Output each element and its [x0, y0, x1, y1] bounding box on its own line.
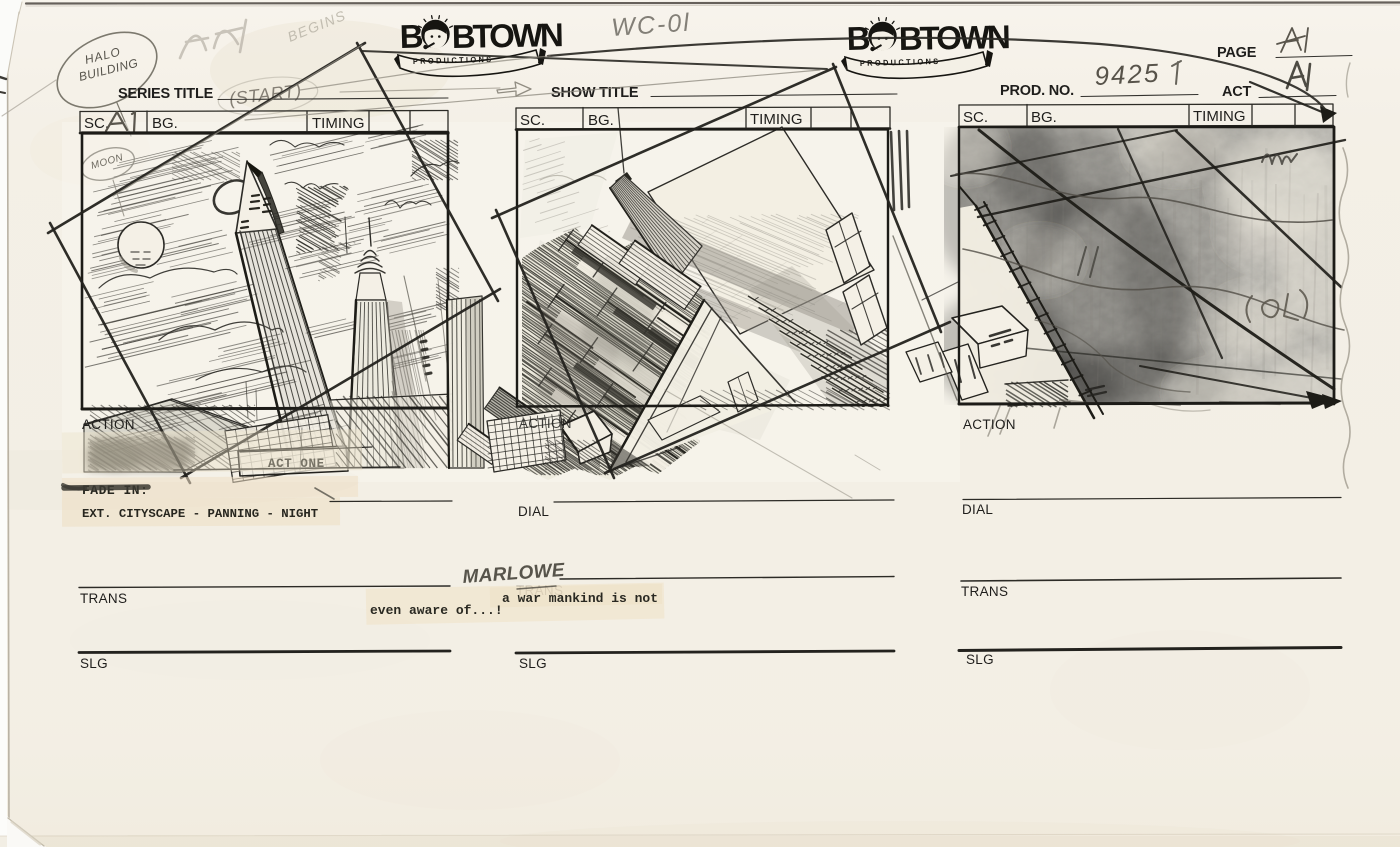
svg-text:SLG: SLG: [966, 652, 994, 667]
svg-text:EXT. CITYSCAPE - PANNING - NI: EXT. CITYSCAPE - PANNING - NIGHT: [82, 507, 319, 521]
svg-text:ACT: ACT: [1222, 84, 1252, 100]
svg-text:TIMING: TIMING: [312, 115, 365, 132]
svg-text:SC.: SC.: [520, 112, 545, 129]
svg-text:ACTION: ACTION: [82, 417, 135, 432]
svg-text:SERIES TITLE: SERIES TITLE: [118, 86, 214, 102]
svg-text:WC-0l: WC-0l: [610, 9, 691, 42]
svg-text:ACTION: ACTION: [963, 417, 1016, 432]
svg-text:a war mankind is not: a war mankind is not: [502, 591, 658, 606]
svg-text:SLG: SLG: [519, 656, 547, 671]
svg-text:TRANS: TRANS: [961, 584, 1008, 599]
svg-text:9425: 9425: [1094, 58, 1161, 91]
svg-text:BTOWN: BTOWN: [451, 16, 562, 55]
svg-text:even aware of...!: even aware of...!: [370, 603, 503, 618]
svg-text:TRANS: TRANS: [80, 591, 127, 606]
svg-text:BG.: BG.: [152, 115, 178, 132]
svg-text:SC.: SC.: [963, 109, 988, 126]
svg-text:PROD. NO.: PROD. NO.: [1000, 83, 1074, 99]
svg-text:BG.: BG.: [588, 112, 614, 129]
svg-text:TIMING: TIMING: [750, 111, 803, 128]
svg-text:TIMING: TIMING: [1193, 108, 1246, 125]
svg-text:PAGE: PAGE: [1217, 45, 1257, 61]
svg-text:SLG: SLG: [80, 656, 108, 671]
svg-text:BG.: BG.: [1031, 109, 1057, 126]
svg-text:DIAL: DIAL: [518, 504, 549, 519]
svg-text:SC.: SC.: [84, 115, 109, 132]
svg-text:DIAL: DIAL: [962, 502, 993, 517]
svg-text:ACTION: ACTION: [519, 416, 572, 431]
